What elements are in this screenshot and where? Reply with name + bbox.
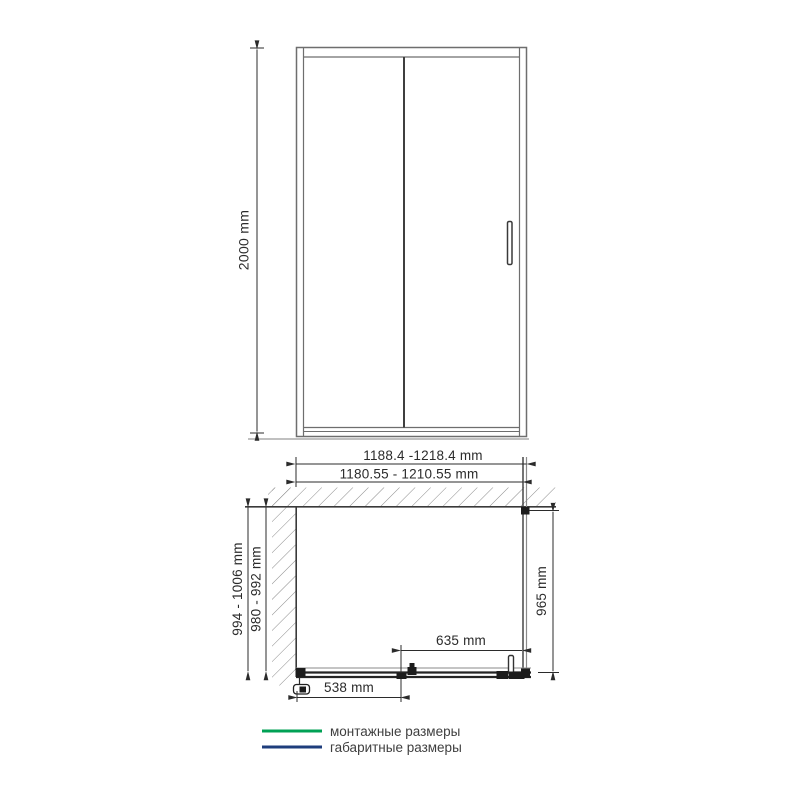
height-dimension-label: 2000 mm bbox=[236, 210, 252, 270]
door-knob bbox=[509, 656, 514, 674]
technical-drawing-page: 2000 mm bbox=[0, 0, 800, 800]
wall-hatch-left bbox=[272, 488, 296, 686]
dimension-height: 2000 mm bbox=[236, 48, 265, 433]
door-handle bbox=[508, 222, 513, 265]
dimension-door-width: 635 mm bbox=[401, 633, 522, 651]
dimension-mounting-depth: 980 - 992 mm bbox=[249, 508, 267, 672]
plan-view: 1188.4 -1218.4 mm 1180.55 - 1210.55 mm 9… bbox=[230, 448, 559, 702]
mounting-depth-label: 980 - 992 mm bbox=[249, 546, 264, 632]
front-view: 2000 mm bbox=[236, 48, 530, 440]
door-hardware-right bbox=[497, 656, 531, 680]
front-view-frame bbox=[297, 48, 527, 437]
overall-depth-label: 994 - 1006 mm bbox=[230, 542, 245, 635]
mounting-width-label: 1180.55 - 1210.55 mm bbox=[340, 467, 479, 482]
side-panel-depth-label: 965 mm bbox=[534, 566, 549, 616]
dimension-fixed-segment: 538 mm bbox=[297, 680, 401, 702]
wall-hatch-top bbox=[268, 488, 556, 507]
dimension-overall-depth: 994 - 1006 mm bbox=[230, 508, 248, 672]
shower-enclosure-dimension-drawing: 2000 mm bbox=[0, 0, 800, 800]
legend: монтажные размеры габаритные размеры bbox=[262, 724, 462, 755]
door-width-label: 635 mm bbox=[436, 633, 486, 648]
dimension-side-panel: 965 mm bbox=[529, 511, 559, 673]
fixed-segment-width-label: 538 mm bbox=[324, 680, 374, 695]
wall-bracket-top bbox=[521, 507, 530, 515]
legend-label-mounting: монтажные размеры bbox=[330, 724, 460, 739]
dimension-mounting-width: 1180.55 - 1210.55 mm bbox=[296, 467, 523, 483]
overall-width-label: 1188.4 -1218.4 mm bbox=[363, 448, 482, 463]
legend-label-overall: габаритные размеры bbox=[330, 740, 462, 755]
